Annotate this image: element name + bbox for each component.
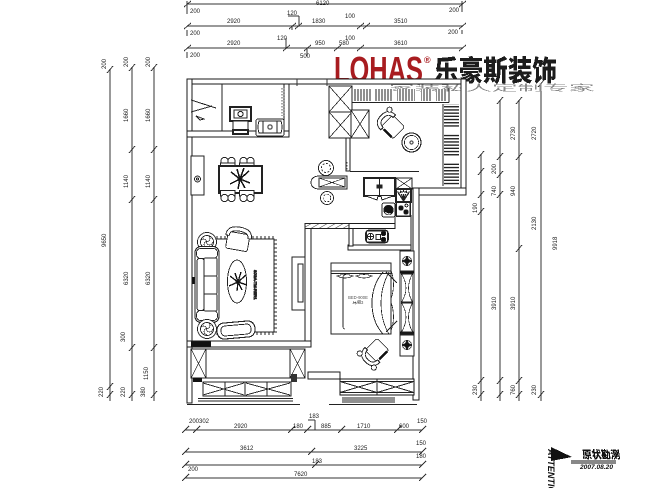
svg-text:1830: 1830: [312, 19, 326, 25]
svg-text:SJGA-TM-RER1: SJGA-TM-RER1: [253, 270, 258, 300]
svg-text:183: 183: [312, 459, 323, 465]
svg-text:183: 183: [309, 414, 320, 420]
svg-text:2920: 2920: [234, 424, 248, 430]
svg-text:300: 300: [121, 331, 127, 342]
svg-text:200: 200: [146, 56, 152, 67]
svg-text:200: 200: [190, 53, 201, 59]
svg-text:1140: 1140: [146, 174, 152, 188]
svg-text:200: 200: [124, 56, 130, 67]
svg-text:2920: 2920: [227, 19, 241, 25]
svg-text:600: 600: [399, 424, 410, 430]
svg-text:2730: 2730: [511, 126, 517, 140]
svg-text:150: 150: [416, 441, 427, 447]
svg-text:760: 760: [511, 384, 517, 395]
svg-text:180: 180: [293, 424, 304, 430]
svg-text:200: 200: [188, 467, 199, 473]
svg-text:BED-900E: BED-900E: [348, 295, 368, 300]
svg-text:1660: 1660: [146, 108, 152, 122]
svg-text:200: 200: [448, 30, 459, 36]
svg-text:2007.08.20: 2007.08.20: [579, 464, 613, 471]
svg-text:100: 100: [345, 14, 356, 20]
svg-text:2920: 2920: [227, 41, 241, 47]
svg-text:230: 230: [532, 384, 538, 395]
svg-text:®: ®: [424, 55, 431, 65]
svg-text:220: 220: [121, 386, 127, 397]
svg-text:200: 200: [492, 163, 498, 174]
svg-text:190: 190: [473, 202, 479, 213]
svg-text:9650: 9650: [102, 233, 108, 247]
svg-text:120: 120: [287, 11, 298, 17]
svg-text:200: 200: [449, 8, 460, 14]
svg-text:150: 150: [417, 419, 428, 425]
svg-text:2720: 2720: [532, 126, 538, 140]
svg-text:3225: 3225: [354, 446, 368, 452]
svg-text:220: 220: [99, 386, 105, 397]
svg-text:100: 100: [345, 36, 356, 42]
svg-text:3510: 3510: [394, 19, 408, 25]
svg-text:1150: 1150: [144, 366, 150, 380]
svg-text:3612: 3612: [240, 446, 254, 452]
svg-text:180: 180: [416, 454, 427, 460]
svg-text:230: 230: [473, 384, 479, 395]
svg-text:6120: 6120: [316, 1, 330, 7]
svg-text:6320: 6320: [146, 271, 152, 285]
svg-text:1710: 1710: [357, 424, 371, 430]
svg-text:9918: 9918: [553, 236, 559, 250]
svg-text:3610: 3610: [394, 41, 408, 47]
svg-text:1660: 1660: [124, 108, 130, 122]
svg-text:2130: 2130: [532, 216, 538, 230]
svg-text:500: 500: [300, 54, 311, 60]
svg-text:200302: 200302: [189, 419, 210, 425]
svg-text:1140: 1140: [124, 174, 130, 188]
svg-text:7620: 7620: [294, 472, 308, 478]
svg-text:885: 885: [321, 424, 332, 430]
svg-text:3910: 3910: [511, 296, 517, 310]
svg-text:380: 380: [141, 386, 147, 397]
svg-text:200: 200: [190, 31, 201, 37]
svg-text:940: 940: [511, 185, 517, 196]
svg-text:200: 200: [190, 9, 201, 15]
svg-text:120: 120: [277, 36, 288, 42]
svg-text:950: 950: [315, 41, 326, 47]
svg-text:200: 200: [102, 58, 108, 69]
svg-text:3910: 3910: [492, 296, 498, 310]
svg-text:6320: 6320: [124, 271, 130, 285]
svg-text:740: 740: [492, 185, 498, 196]
